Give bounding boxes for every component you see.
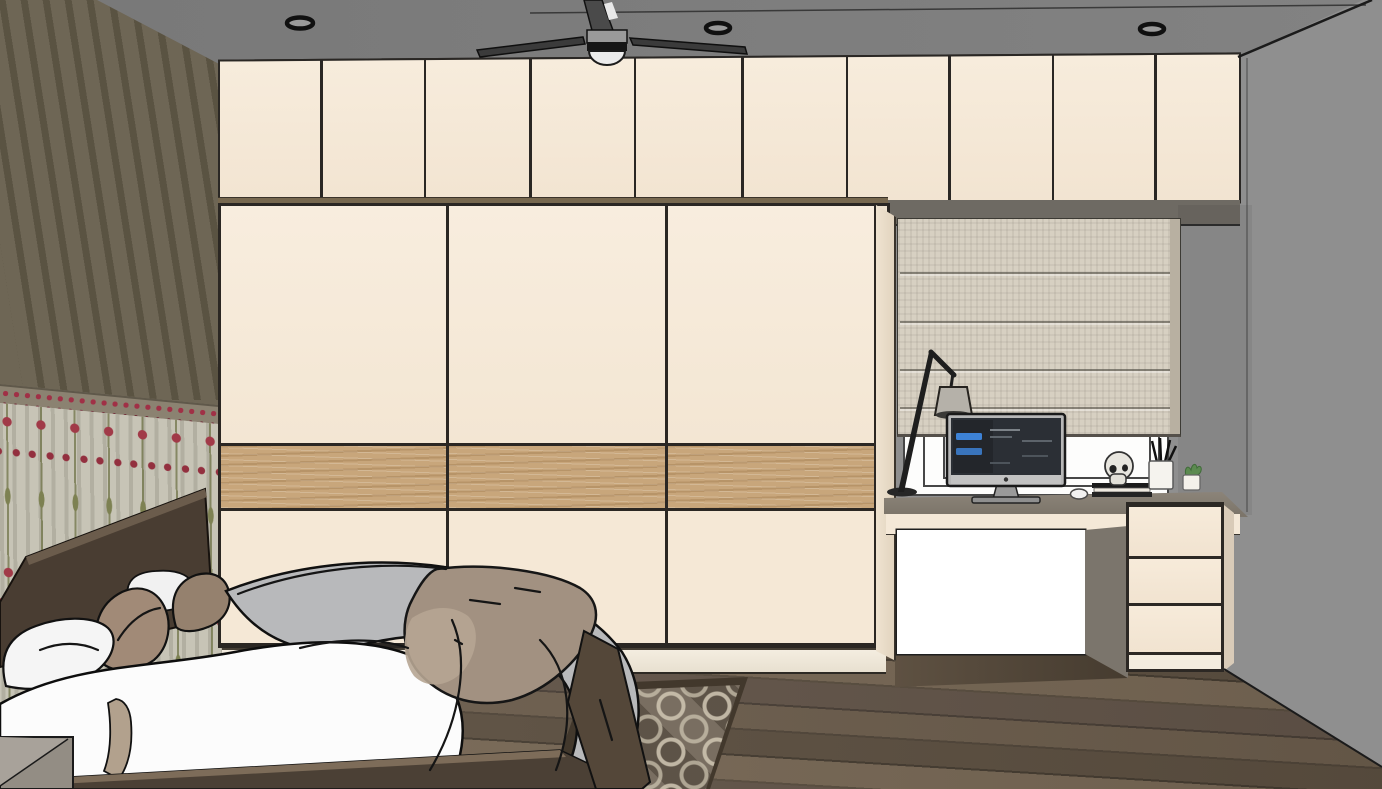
desk-drawer [1129,507,1221,556]
upper-cabinet-row [218,52,1241,210]
door-oak-band [449,446,665,508]
desk-drawer [1129,606,1221,652]
upper-cabinet-door [951,56,1052,204]
upper-cabinet-door [848,56,948,204]
door-panel-top [449,206,665,443]
door-oak-band [668,446,874,508]
upper-cabinet-door [426,59,529,207]
blind-fold [900,272,1178,274]
wardrobe-base-kick [222,648,886,674]
desk-drawer-unit [1126,502,1224,672]
sliding-door [668,206,874,643]
door-panel-bottom [668,511,874,643]
drawer-unit-side-panel [1085,526,1128,680]
drawer-unit-right-side [1224,505,1234,671]
wardrobe-end-panel [876,203,896,663]
upper-cabinet-door [1054,55,1154,203]
sliding-door [449,206,665,643]
blind-fold [900,321,1178,323]
wallpaper-wall [0,0,226,789]
desk-knee-space [897,530,1085,654]
blind-side-return [1170,219,1180,434]
sliding-door [221,206,446,643]
desk-drawer [1129,559,1221,603]
blind-fold [900,407,1178,409]
upper-cabinet-door [323,60,424,208]
upper-cabinet-door [744,57,846,205]
door-panel-top [668,206,874,443]
upper-cabinet-door [220,61,320,209]
drawer-unit-base [1129,655,1221,669]
sliding-wardrobe [218,203,890,648]
door-panel-top [221,206,446,443]
nook-wall-shadow [1178,205,1252,515]
upper-cabinet-door [1157,54,1240,202]
door-panel-bottom [221,511,446,643]
bedroom-render [0,0,1382,789]
upper-cabinet-door [532,59,634,207]
door-panel-bottom [449,511,665,643]
blind-fold [900,369,1178,371]
roman-blind [897,218,1181,437]
upper-cabinet-door [636,58,741,206]
door-oak-band [221,446,446,508]
